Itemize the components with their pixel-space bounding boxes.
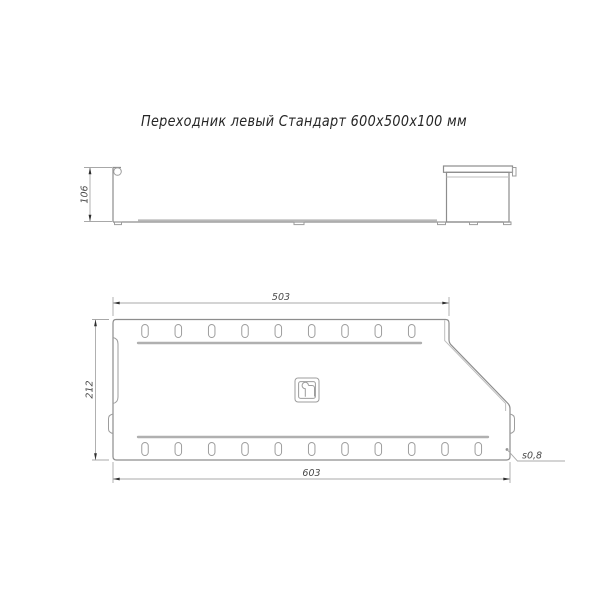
plan-outline <box>113 320 510 461</box>
slot <box>375 325 382 338</box>
slot <box>175 443 182 456</box>
dimension-503: 503 <box>113 292 449 316</box>
side-foot <box>294 222 304 225</box>
dimension-106: 106 <box>80 168 113 222</box>
dimension-value: 212 <box>85 380 96 398</box>
dimension-value: 603 <box>302 468 320 479</box>
technical-drawing: Переходник левый Стандарт 600х500х100 мм… <box>0 0 600 600</box>
slot <box>475 443 482 456</box>
arrowhead <box>113 478 120 481</box>
slot <box>342 325 349 338</box>
slot <box>275 325 282 338</box>
manufacturer-monogram-icon <box>295 378 319 402</box>
slot <box>142 443 149 456</box>
arrowhead <box>442 302 449 305</box>
thickness-callout: s0,8 <box>506 448 565 461</box>
logo-glyph <box>302 382 314 396</box>
arrowhead <box>89 215 92 222</box>
slot <box>275 443 282 456</box>
side-foot <box>504 222 512 225</box>
arrowhead <box>113 302 120 305</box>
side-view <box>113 166 516 225</box>
slot <box>242 443 249 456</box>
side-end-flange <box>444 166 513 172</box>
drawing-canvas: Переходник левый Стандарт 600х500х100 мм… <box>0 0 600 600</box>
dimension-value: 503 <box>272 292 290 303</box>
plan-view <box>109 320 515 461</box>
slot <box>208 325 215 338</box>
dimension-603: 603 <box>113 462 510 483</box>
slot <box>308 443 315 456</box>
connector-tongue <box>113 338 118 404</box>
dimension-212: 212 <box>85 320 110 461</box>
arrowhead <box>94 320 97 327</box>
arrowhead <box>503 478 510 481</box>
slot-row-bottom <box>142 443 482 456</box>
slot <box>308 325 315 338</box>
connector-tab-left <box>109 414 114 434</box>
slot-row-top <box>142 325 415 338</box>
slot <box>342 443 349 456</box>
slot <box>142 325 149 338</box>
side-rolled-lip-hook <box>114 168 122 176</box>
page-title: Переходник левый Стандарт 600х500х100 мм <box>141 112 467 130</box>
slot <box>375 443 382 456</box>
thickness-value: s0,8 <box>522 451 542 462</box>
slot <box>175 325 182 338</box>
slot <box>242 325 249 338</box>
plan-fold-line <box>445 320 506 411</box>
arrowhead <box>94 453 97 460</box>
connector-tab-right <box>510 414 515 434</box>
side-end-box <box>447 172 510 222</box>
slot <box>442 443 449 456</box>
side-foot <box>115 222 122 225</box>
arrowhead <box>89 168 92 175</box>
side-foot <box>438 222 446 225</box>
slot <box>408 443 415 456</box>
dimension-value: 106 <box>80 185 91 203</box>
logo-inner-frame <box>299 382 316 399</box>
side-foot <box>470 222 478 225</box>
slot <box>408 325 415 338</box>
slot <box>208 443 215 456</box>
